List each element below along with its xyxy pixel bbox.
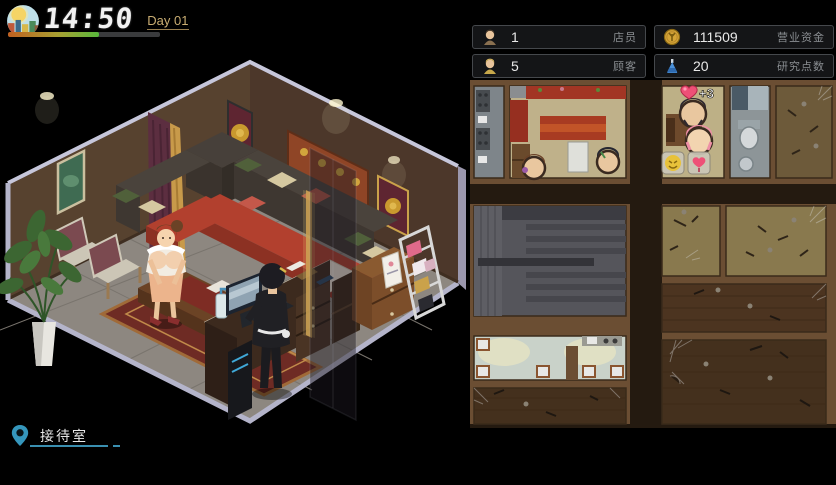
affection-gain-text: +3 bbox=[699, 86, 714, 101]
funds-label: 营业资金 bbox=[777, 29, 825, 45]
reception-room-scene[interactable] bbox=[0, 0, 470, 485]
location-label: 接待室 bbox=[10, 423, 88, 448]
customer-label: 顾客 bbox=[613, 58, 637, 74]
game-screen: 14:50 Day 01 1 店员 111509 营业资金 bbox=[0, 0, 836, 485]
coin-icon bbox=[663, 28, 681, 46]
flask-icon bbox=[663, 57, 681, 75]
minimap-portrait-female-staff[interactable] bbox=[522, 154, 545, 179]
heart-balloon-icon bbox=[688, 152, 710, 174]
location-underline bbox=[30, 445, 108, 447]
minimap-portrait-male-customer[interactable] bbox=[597, 147, 619, 173]
stat-funds: 111509 营业资金 bbox=[654, 25, 834, 49]
research-count: 20 bbox=[693, 58, 709, 74]
customer-icon bbox=[481, 57, 499, 75]
clock-time: 14:50 bbox=[42, 4, 134, 34]
minimap-dirty-room-1[interactable] bbox=[776, 86, 832, 178]
location-pin-icon bbox=[10, 423, 30, 448]
location-name: 接待室 bbox=[40, 426, 88, 446]
pc-tower bbox=[228, 340, 252, 420]
day-progress-fill bbox=[8, 32, 99, 37]
customer-count: 5 bbox=[511, 58, 519, 74]
minimap-kitchen[interactable] bbox=[474, 86, 504, 178]
minimap-dirty-room-2[interactable] bbox=[662, 206, 720, 276]
stat-customers: 5 顾客 bbox=[472, 54, 646, 78]
minimap-dirty-room-5[interactable] bbox=[474, 388, 626, 424]
minimap-dirty-room-6[interactable] bbox=[662, 340, 826, 424]
minimap-stairwell[interactable] bbox=[474, 206, 626, 316]
poster-card bbox=[382, 252, 402, 288]
research-label: 研究点数 bbox=[777, 58, 825, 74]
stat-staff: 1 店员 bbox=[472, 25, 646, 49]
minimap-reception[interactable] bbox=[510, 86, 626, 179]
minimap-portrait-bedroom-man[interactable] bbox=[680, 98, 706, 127]
minimap-bedroom[interactable]: +3 bbox=[662, 86, 724, 178]
minimap-small-bedrooms[interactable] bbox=[474, 336, 626, 380]
day-label: Day 01 bbox=[147, 13, 188, 30]
minimap-bathroom[interactable] bbox=[730, 86, 770, 178]
location-underline-dash bbox=[113, 445, 120, 447]
floor-minimap[interactable]: +3 bbox=[470, 80, 836, 428]
staff-count: 1 bbox=[511, 29, 519, 45]
day-progress-bar bbox=[8, 32, 160, 37]
funds-amount: 111509 bbox=[693, 29, 738, 45]
staff-label: 店员 bbox=[613, 29, 637, 45]
minimap-dirty-room-3[interactable] bbox=[726, 206, 826, 276]
happy-emoji-icon bbox=[662, 152, 684, 174]
minimap-portrait-pink-girl[interactable] bbox=[686, 125, 712, 154]
staff-icon bbox=[481, 28, 499, 46]
stats-panel: 1 店员 111509 营业资金 5 顾客 bbox=[472, 25, 834, 78]
minimap-dirty-room-4[interactable] bbox=[662, 284, 826, 332]
glass-partition[interactable] bbox=[310, 148, 356, 420]
stat-research: 20 研究点数 bbox=[654, 54, 834, 78]
